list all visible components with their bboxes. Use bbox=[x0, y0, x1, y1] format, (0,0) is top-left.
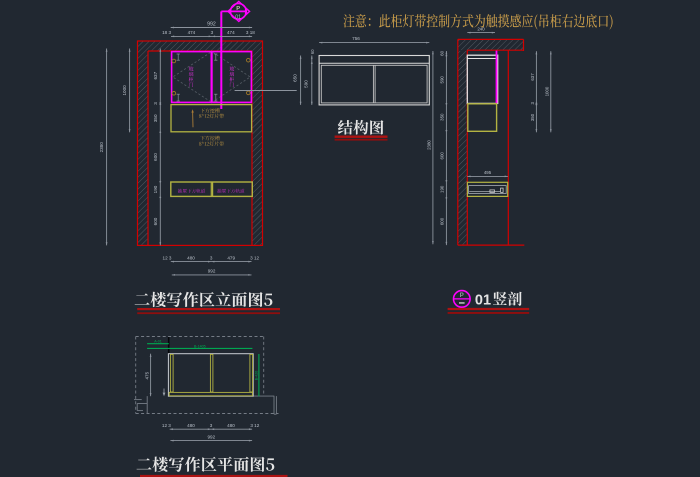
svg-text:18 3: 18 3 bbox=[162, 30, 171, 35]
svg-text:01: 01 bbox=[235, 14, 241, 20]
svg-text:P: P bbox=[460, 293, 464, 299]
svg-text:590: 590 bbox=[304, 80, 309, 88]
svg-text:350: 350 bbox=[440, 113, 445, 121]
svg-text:P: P bbox=[236, 6, 240, 12]
svg-text:1000: 1000 bbox=[544, 86, 549, 96]
svg-text:12 3: 12 3 bbox=[162, 423, 171, 428]
svg-text:3: 3 bbox=[530, 101, 535, 104]
svg-text:350: 350 bbox=[153, 114, 158, 122]
svg-text:992: 992 bbox=[207, 21, 216, 27]
svg-text:2380: 2380 bbox=[426, 140, 431, 150]
svg-text:190: 190 bbox=[440, 185, 445, 193]
svg-text:3 18: 3 18 bbox=[246, 30, 255, 35]
svg-text:60: 60 bbox=[440, 50, 445, 55]
svg-text:60: 60 bbox=[310, 49, 315, 54]
svg-text:474: 474 bbox=[227, 30, 235, 35]
svg-text:600: 600 bbox=[153, 217, 158, 225]
svg-text:992: 992 bbox=[207, 434, 215, 439]
svg-text:480: 480 bbox=[187, 423, 195, 428]
svg-text:240: 240 bbox=[477, 26, 485, 31]
svg-text:B-420: B-420 bbox=[254, 371, 258, 381]
svg-text:3: 3 bbox=[210, 423, 213, 428]
svg-text:479: 479 bbox=[227, 255, 235, 260]
svg-text:475: 475 bbox=[144, 371, 149, 379]
svg-text:600: 600 bbox=[440, 152, 445, 160]
svg-text:1000: 1000 bbox=[122, 85, 127, 96]
svg-text:B-1405: B-1405 bbox=[194, 344, 206, 348]
svg-text:992: 992 bbox=[208, 269, 216, 274]
svg-text:474: 474 bbox=[188, 30, 196, 35]
svg-text:650: 650 bbox=[292, 74, 297, 82]
svg-text:350: 350 bbox=[530, 113, 535, 121]
svg-text:600: 600 bbox=[153, 153, 158, 161]
svg-text:637: 637 bbox=[153, 71, 158, 79]
svg-text:12 3: 12 3 bbox=[163, 255, 172, 260]
svg-text:3 12: 3 12 bbox=[250, 423, 259, 428]
svg-text:756: 756 bbox=[352, 36, 360, 41]
svg-text:3: 3 bbox=[153, 102, 158, 105]
svg-text:480: 480 bbox=[187, 255, 195, 260]
svg-text:590: 590 bbox=[440, 76, 445, 84]
svg-text:2380: 2380 bbox=[99, 142, 104, 153]
svg-text:495: 495 bbox=[484, 170, 492, 175]
svg-text:600: 600 bbox=[440, 217, 445, 225]
svg-text:3: 3 bbox=[210, 255, 213, 260]
svg-text:A-01: A-01 bbox=[154, 340, 162, 344]
svg-text:3: 3 bbox=[211, 30, 214, 35]
svg-text:480: 480 bbox=[227, 423, 235, 428]
svg-text:01: 01 bbox=[475, 292, 491, 308]
svg-text:3 12: 3 12 bbox=[250, 255, 259, 260]
svg-text:637: 637 bbox=[530, 73, 535, 81]
svg-text:190: 190 bbox=[153, 185, 158, 193]
